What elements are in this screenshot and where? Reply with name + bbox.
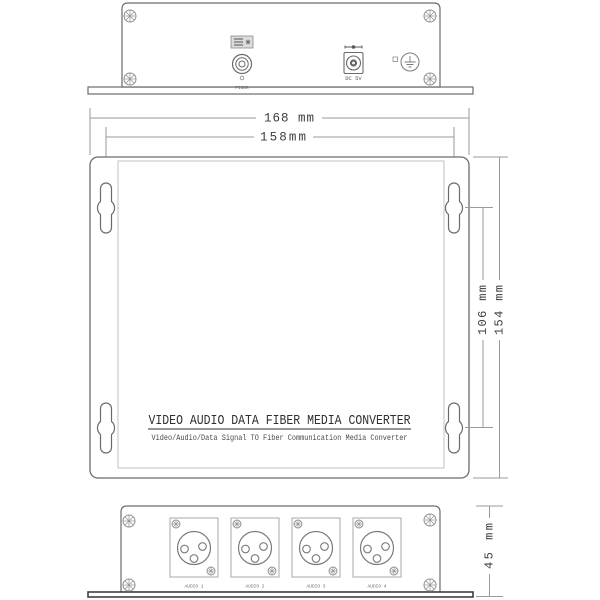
fiber-connector xyxy=(233,55,252,74)
bottom-panel-view: AUDIO 1 AUDIO 2 AUDIO 3 AUDIO 4 xyxy=(88,506,473,597)
hole-spacing-height-value: 106 mm xyxy=(476,285,490,335)
keyhole-mounting-slot xyxy=(97,403,114,453)
xlr-connector-audio-3 xyxy=(292,518,340,577)
hole-spacing-width-value: 158mm xyxy=(260,130,306,144)
front-panel-flange-plate xyxy=(90,157,469,478)
screw-icon xyxy=(424,579,436,591)
depth-value: 45 mm xyxy=(483,523,497,569)
screw-icon xyxy=(124,73,136,85)
media-converter-drawing: FIBER DC 5V 168 mm 158mm xyxy=(0,0,600,600)
top-panel-body xyxy=(122,3,440,87)
keyhole-mounting-slot xyxy=(97,183,114,233)
dc-power-label: DC 5V xyxy=(345,75,362,82)
keyhole-mounting-slot xyxy=(445,403,462,453)
audio-port-label: AUDIO 3 xyxy=(307,584,326,590)
laser-warning-label xyxy=(231,36,253,48)
screw-icon xyxy=(123,515,135,527)
technical-drawing-page: FIBER DC 5V 168 mm 158mm xyxy=(0,0,600,600)
fiber-port-label: FIBER xyxy=(235,85,249,91)
screw-icon xyxy=(424,73,436,85)
product-title: VIDEO AUDIO DATA FIBER MEDIA CONVERTER xyxy=(149,413,411,429)
screw-icon xyxy=(124,10,136,22)
front-panel-view: VIDEO AUDIO DATA FIBER MEDIA CONVERTER V… xyxy=(90,157,469,478)
top-panel-view: FIBER DC 5V xyxy=(88,3,473,94)
xlr-connector-audio-4 xyxy=(353,518,401,577)
screw-icon xyxy=(424,514,436,526)
xlr-connector-audio-1 xyxy=(170,518,218,577)
audio-port-label: AUDIO 4 xyxy=(368,584,387,590)
bottom-panel-flange xyxy=(88,592,473,597)
audio-port-label: AUDIO 2 xyxy=(246,584,265,590)
dimension-depth: 45 mm xyxy=(476,506,503,597)
ground-screw-hole xyxy=(393,57,398,62)
audio-port-label: AUDIO 1 xyxy=(185,584,204,590)
screw-icon xyxy=(123,579,135,591)
top-panel-flange xyxy=(88,87,473,94)
screw-icon xyxy=(424,10,436,22)
xlr-connector-audio-2 xyxy=(231,518,279,577)
dc-power-jack xyxy=(344,53,363,74)
fiber-indicator-hole xyxy=(240,76,244,80)
product-subtitle: Video/Audio/Data Signal TO Fiber Communi… xyxy=(152,434,408,443)
overall-height-value: 154 mm xyxy=(493,285,507,335)
ground-terminal-icon xyxy=(401,53,419,71)
keyhole-mounting-slot xyxy=(445,183,462,233)
overall-width-value: 168 mm xyxy=(264,111,314,125)
